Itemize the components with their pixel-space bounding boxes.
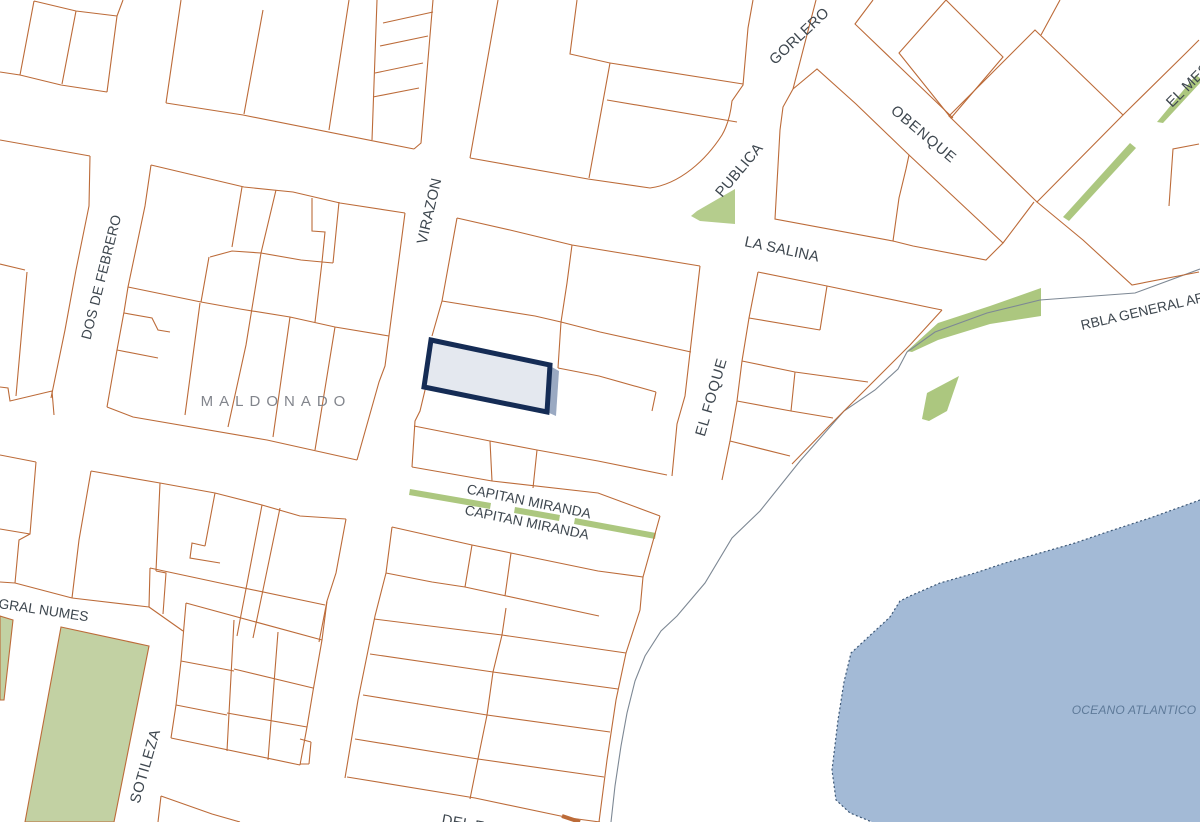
svg-text:OCEANO ATLANTICO: OCEANO ATLANTICO — [1072, 703, 1197, 717]
svg-text:MALDONADO: MALDONADO — [201, 393, 352, 410]
